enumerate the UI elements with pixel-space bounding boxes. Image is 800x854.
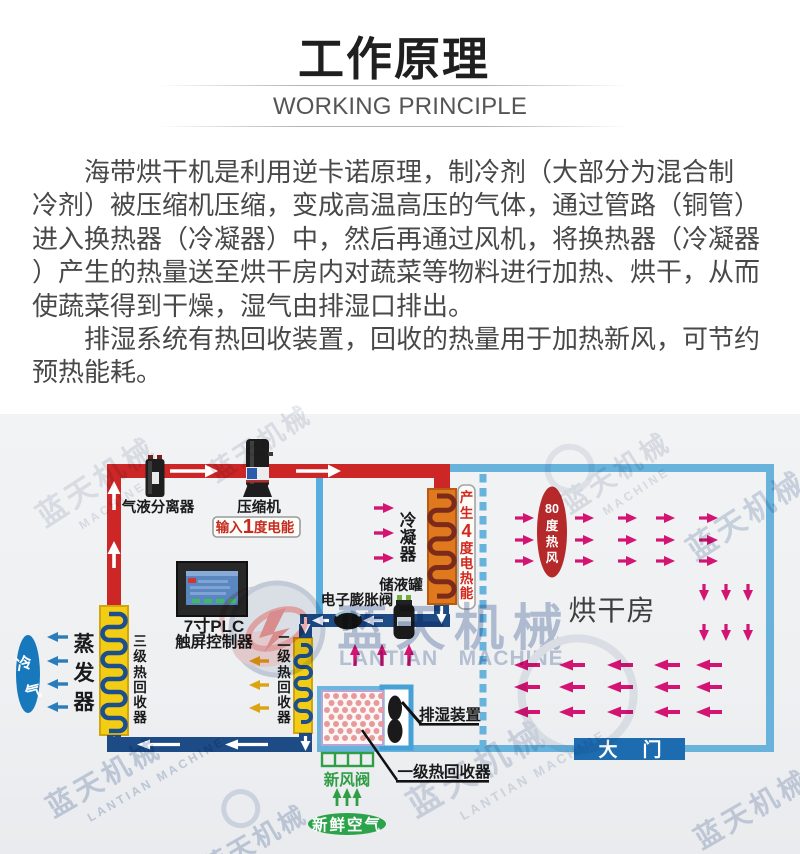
svg-text:压缩机: 压缩机 (237, 498, 281, 516)
svg-text:80: 80 (545, 502, 559, 516)
svg-text:三: 三 (133, 634, 147, 649)
svg-text:门: 门 (642, 738, 661, 761)
svg-text:蓝天机械: 蓝天机械 (681, 465, 800, 567)
svg-text:冷: 冷 (400, 510, 417, 530)
svg-text:器: 器 (132, 710, 147, 725)
svg-text:器: 器 (399, 545, 417, 564)
svg-text:器: 器 (73, 691, 96, 714)
svg-text:能: 能 (460, 585, 474, 601)
svg-text:度: 度 (460, 540, 474, 556)
svg-text:蓝天机械: 蓝天机械 (689, 764, 800, 854)
svg-text:热: 热 (133, 664, 147, 680)
svg-text:热: 热 (546, 534, 559, 549)
svg-text:发: 发 (73, 661, 96, 685)
svg-text:蒸: 蒸 (74, 633, 95, 656)
svg-text:排湿装置: 排湿装置 (419, 705, 481, 724)
svg-text:回: 回 (277, 680, 291, 695)
svg-text:热: 热 (460, 570, 474, 586)
svg-text:级: 级 (133, 648, 147, 664)
svg-text:回: 回 (133, 680, 147, 695)
svg-text:新鲜空气: 新鲜空气 (312, 815, 382, 834)
svg-text:电: 电 (460, 555, 474, 571)
svg-text:收: 收 (277, 694, 291, 710)
svg-text:蓝天机械: 蓝天机械 (197, 799, 312, 854)
svg-text:产: 产 (460, 489, 474, 505)
svg-text:生: 生 (460, 505, 474, 521)
svg-text:储液罐: 储液罐 (379, 576, 423, 594)
svg-text:收: 收 (133, 694, 147, 710)
svg-text:新风阀: 新风阀 (324, 770, 371, 789)
svg-text:输入1度电能: 输入1度电能 (216, 516, 295, 538)
svg-text:度: 度 (546, 518, 559, 533)
svg-text:凝: 凝 (400, 528, 417, 547)
svg-text:风: 风 (546, 551, 559, 565)
svg-text:4: 4 (461, 521, 471, 541)
svg-text:器: 器 (276, 710, 291, 725)
svg-text:烘干房: 烘干房 (568, 595, 655, 626)
